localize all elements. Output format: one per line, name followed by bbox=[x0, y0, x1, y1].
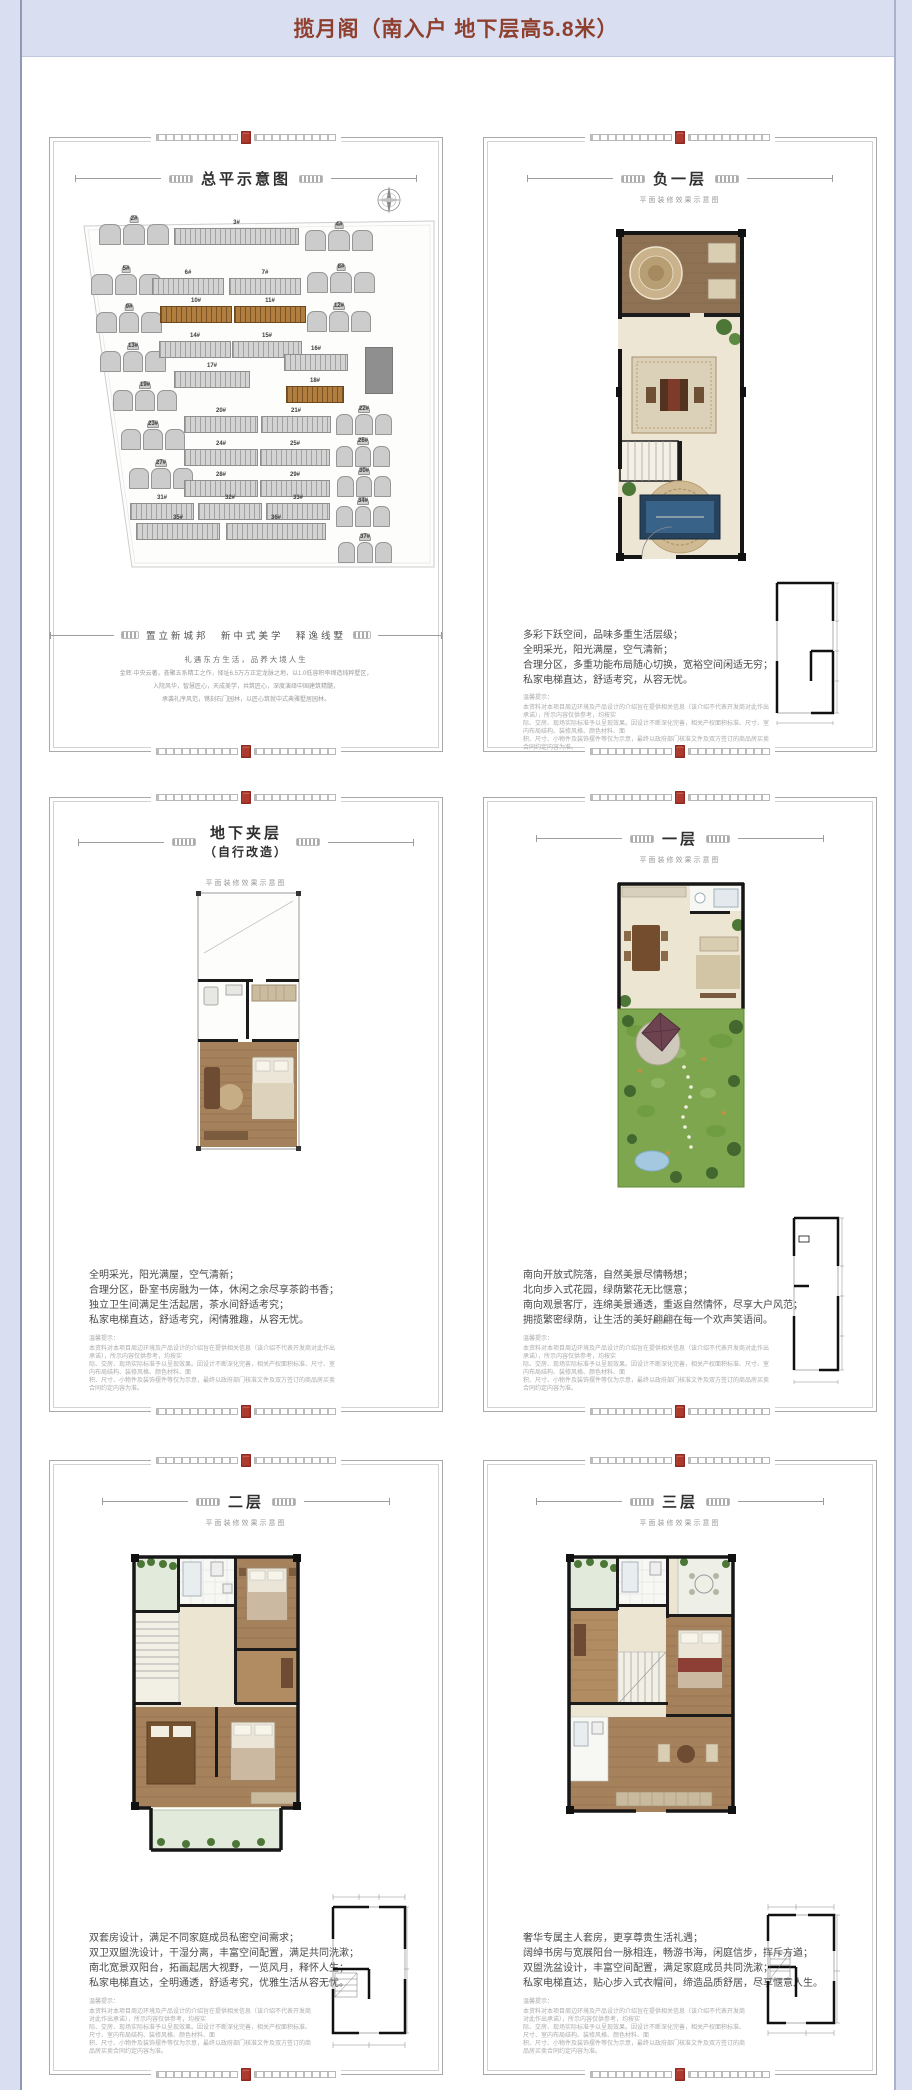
building-25#: 25# bbox=[260, 449, 330, 466]
building-label: 11# bbox=[265, 298, 275, 304]
building-label: 25# bbox=[290, 441, 300, 447]
building-label: 20# bbox=[216, 408, 226, 414]
key-plan-diagram bbox=[319, 1889, 409, 2056]
project-paragraph: 金辉·中央云著，荟聚五系精工之作，择址6.5万方正定龙脉之地，以1.0低容积率缔… bbox=[70, 668, 422, 707]
building-label: 19# bbox=[139, 381, 151, 389]
panel-ornament-top bbox=[151, 791, 341, 804]
floor-plan-basement-1 bbox=[616, 229, 746, 561]
red-seal-icon bbox=[675, 2068, 685, 2081]
building-label: 16# bbox=[311, 346, 321, 352]
building-label: 3# bbox=[233, 220, 240, 226]
disclaimer-line: 际、交房、现场实际标准予以呈现效果。因设计不断深化完善，相关产权面积标准、尺寸、… bbox=[523, 720, 773, 736]
building-37#: 37# bbox=[338, 542, 392, 563]
building-30#: 30# bbox=[337, 476, 391, 497]
building-2#: 2# bbox=[99, 224, 169, 245]
building-19#: 19# bbox=[113, 390, 177, 411]
red-seal-icon bbox=[241, 1405, 251, 1418]
disclaimer: 温馨提示： 本资料对本项目周边环境及产品设计的介绍旨在提供相关信息（该介绍不代表… bbox=[523, 1335, 773, 1393]
building-label: 24# bbox=[216, 441, 226, 447]
panel-ornament-top bbox=[585, 1454, 775, 1467]
building-label: 35# bbox=[173, 515, 183, 521]
building-label: 2# bbox=[130, 215, 139, 223]
disclaimer-line: 际、交房、现场实际标准予以呈现效果。因设计不断深化完善，相关产权面积标准、尺寸、… bbox=[523, 1361, 773, 1377]
red-seal-icon bbox=[675, 131, 685, 144]
notice-label: 温馨提示： bbox=[523, 1335, 773, 1343]
building-label: 12# bbox=[333, 302, 345, 310]
notice-label: 温馨提示： bbox=[523, 694, 773, 702]
disclaimer-line: 本资料对本项目周边环境及产品设计的介绍旨在提供相关信息（该介绍不代表开发商对此作… bbox=[89, 1345, 339, 1361]
panel-title-row: 一层 bbox=[484, 828, 876, 849]
disclaimer-line: 际、交房、现场实际标准予以呈现效果。因设计不断深化完善，相关产权面积标准、尺寸、… bbox=[89, 2024, 313, 2040]
red-seal-icon bbox=[675, 1405, 685, 1418]
red-seal-icon bbox=[241, 2068, 251, 2081]
key-plan-diagram bbox=[789, 1216, 846, 1391]
panel-subtitle: 平面装修效果示意图 bbox=[50, 878, 442, 888]
building-label: 33# bbox=[293, 495, 303, 501]
disclaimer-line: 本资料对本项目周边环境及产品设计的介绍旨在提供相关信息（该介绍不代表开发商对此作… bbox=[89, 2008, 313, 2024]
building-34#: 34# bbox=[336, 506, 390, 527]
building-block bbox=[365, 347, 393, 394]
building-label: 9# bbox=[125, 303, 134, 311]
building-label: 13# bbox=[127, 342, 139, 350]
panel-ornament-bottom bbox=[151, 1405, 341, 1418]
red-seal-icon bbox=[675, 791, 685, 804]
building-label: 36# bbox=[271, 515, 281, 521]
key-plan-diagram bbox=[756, 1901, 841, 2041]
building-label: 34# bbox=[357, 497, 369, 505]
building-13#: 13# bbox=[100, 351, 166, 372]
panel-ornament-top bbox=[151, 1454, 341, 1467]
building-31#: 31# bbox=[130, 503, 194, 520]
disclaimer-line: 积、尺寸、小物件及装饰摆件等仅为示意，最终以政府部门核准文件及双方签订的商品房买… bbox=[89, 2040, 313, 2056]
panel-floor-3: 三层 平面装修效果示意图 bbox=[483, 1460, 877, 2075]
floor-plan-floor-1 bbox=[616, 881, 746, 1191]
panel-subtitle: 平面装修效果示意图 bbox=[50, 1518, 442, 1528]
building-label: 21# bbox=[291, 408, 301, 414]
disclaimer-line: 本资料对本项目周边环境及产品设计的介绍旨在提供相关信息（该介绍不代表开发商对此作… bbox=[523, 704, 773, 720]
building-5#: 5# bbox=[91, 274, 161, 295]
panel-title: 负一层 bbox=[653, 168, 707, 189]
red-seal-icon bbox=[241, 791, 251, 804]
notice-label: 温馨提示： bbox=[523, 1998, 747, 2006]
site-plan: 2#3#4#5#6#7#8#9#10#11#12#13#14#15#16#17#… bbox=[74, 216, 440, 579]
panel-ornament-top bbox=[585, 131, 775, 144]
building-label: 5# bbox=[122, 265, 131, 273]
building-32#: 32# bbox=[198, 503, 262, 520]
panel-basement-1: 负一层 平面装修效果示意图 bbox=[483, 137, 877, 752]
building-label: 37# bbox=[359, 533, 371, 541]
building-16#: 16# bbox=[284, 354, 348, 371]
building-35#: 35# bbox=[136, 523, 220, 540]
panel-title-row: 地下夹层 （自行改造） bbox=[50, 824, 442, 860]
floor-description: 全明采光，阳光满屋，空气清新； 合理分区，卧室书房融为一体，休闲之余尽享茶韵书香… bbox=[89, 1268, 416, 1328]
red-seal-icon bbox=[241, 1454, 251, 1467]
notice-label: 温馨提示： bbox=[89, 1998, 313, 2006]
left-margin-strip bbox=[0, 0, 22, 2090]
building-label: 18# bbox=[310, 378, 320, 384]
disclaimer-line: 际、交房、现场实际标准予以呈现效果。因设计不断深化完善，相关产权面积标准、尺寸、… bbox=[523, 2024, 747, 2040]
disclaimer: 温馨提示： 本资料对本项目周边环境及产品设计的介绍旨在提供相关信息（该介绍不代表… bbox=[89, 1335, 339, 1393]
building-label: 23# bbox=[147, 420, 159, 428]
disclaimer-line: 积、尺寸、小物件及装饰摆件等仅为示意，最终以政府部门核准文件及双方签订的商品房买… bbox=[523, 2040, 747, 2056]
panel-title: 总平示意图 bbox=[201, 168, 291, 189]
building-label: 14# bbox=[190, 333, 200, 339]
building-12#: 12# bbox=[307, 311, 371, 332]
paragraph-line: 入院风华，智慧匠心，天成美学，共筑匠心，深度演绎中国建筑精髓， bbox=[70, 681, 422, 694]
building-label: 30# bbox=[358, 467, 370, 475]
building-26#: 26# bbox=[336, 446, 390, 467]
building-23#: 23# bbox=[121, 429, 185, 450]
building-label: 29# bbox=[290, 472, 300, 478]
building-label: 7# bbox=[262, 270, 269, 276]
panel-mezzanine: 地下夹层 （自行改造） 平面装修效果示意图 bbox=[49, 797, 443, 1412]
disclaimer-line: 积、尺寸、小物件及装饰摆件等仅为示意，最终以政府部门核准文件及双方签订的商品房买… bbox=[89, 1377, 339, 1393]
panel-title-row: 二层 bbox=[50, 1491, 442, 1512]
building-20#: 20# bbox=[184, 416, 258, 433]
disclaimer-line: 本资料对本项目周边环境及产品设计的介绍旨在提供相关信息（该介绍不代表开发商对此作… bbox=[523, 2008, 747, 2024]
red-seal-icon bbox=[241, 131, 251, 144]
building-18#: 18# bbox=[286, 386, 344, 403]
building-label: 31# bbox=[157, 495, 167, 501]
floor-plan-floor-3 bbox=[566, 1554, 736, 1849]
panel-floor-2: 二层 平面装修效果示意图 bbox=[49, 1460, 443, 2075]
desc-line: 全明采光，阳光满屋，空气清新； bbox=[89, 1268, 416, 1283]
panel-subtitle: 平面装修效果示意图 bbox=[484, 1518, 876, 1528]
desc-line: 独立卫生间满足生活起居，茶水间舒适考究； bbox=[89, 1298, 416, 1313]
building-9#: 9# bbox=[96, 312, 162, 333]
panel-title: 三层 bbox=[662, 1491, 698, 1512]
building-7#: 7# bbox=[229, 278, 301, 295]
building-label: 8# bbox=[337, 263, 346, 271]
paragraph-line: 承袭礼序风范，镌刻石门园林，以匠心筑就中式典雅墅居园林。 bbox=[70, 694, 422, 707]
building-24#: 24# bbox=[184, 449, 258, 466]
panel-title-row: 负一层 bbox=[484, 168, 876, 189]
desc-line: 合理分区，卧室书房融为一体，休闲之余尽享茶韵书香； bbox=[89, 1283, 416, 1298]
project-tagline: 置立新城邦 新中式美学 释逸线墅 bbox=[146, 628, 346, 642]
key-plan-diagram bbox=[771, 581, 841, 731]
building-36#: 36# bbox=[226, 523, 326, 540]
building-28#: 28# bbox=[184, 480, 258, 497]
floor-plan-mezzanine bbox=[196, 891, 301, 1151]
panel-title: 地下夹层 bbox=[210, 824, 282, 844]
building-label: 6# bbox=[185, 270, 192, 276]
panel-ornament-bottom bbox=[585, 2068, 775, 2081]
building-22#: 22# bbox=[336, 414, 392, 435]
building-3#: 3# bbox=[174, 228, 299, 245]
panel-subtitle: 平面装修效果示意图 bbox=[484, 855, 876, 865]
compass-icon bbox=[374, 182, 404, 216]
paragraph-line: 金辉·中央云著，荟聚五系精工之作，择址6.5万方正定龙脉之地，以1.0低容积率缔… bbox=[70, 668, 422, 681]
panel-subtitle: 平面装修效果示意图 bbox=[484, 195, 876, 205]
notice-label: 温馨提示： bbox=[89, 1335, 339, 1343]
building-21#: 21# bbox=[261, 416, 331, 433]
panel-ornament-bottom bbox=[151, 2068, 341, 2081]
panel-ornament-top bbox=[151, 131, 341, 144]
building-11#: 11# bbox=[234, 306, 306, 323]
disclaimer-line: 积、尺寸、小物件及装饰摆件等仅为示意，最终以政府部门核准文件及双方签订的商品房买… bbox=[523, 1377, 773, 1393]
building-label: 15# bbox=[262, 333, 272, 339]
red-seal-icon bbox=[675, 1454, 685, 1467]
disclaimer: 温馨提示： 本资料对本项目周边环境及产品设计的介绍旨在提供相关信息（该介绍不代表… bbox=[89, 1998, 313, 2056]
building-17#: 17# bbox=[174, 371, 250, 388]
building-label: 26# bbox=[357, 437, 369, 445]
building-label: 4# bbox=[335, 221, 344, 229]
disclaimer-line: 积、尺寸、小物件及装饰摆件等仅为示意，最终以政府部门核准文件及双方签订的商品房买… bbox=[523, 736, 773, 752]
desc-line: 私家电梯直达，舒适考究，闲情雅趣，从容无忧。 bbox=[89, 1313, 416, 1328]
building-10#: 10# bbox=[160, 306, 232, 323]
page-title: 揽月阁（南入户 地下层高5.8米） bbox=[0, 13, 912, 43]
building-label: 17# bbox=[207, 363, 217, 369]
building-label: 22# bbox=[358, 405, 370, 413]
disclaimer-line: 际、交房、现场实际标准予以呈现效果。因设计不断深化完善，相关产权面积标准、尺寸、… bbox=[89, 1361, 339, 1377]
building-label: 10# bbox=[191, 298, 201, 304]
panel-ornament-top bbox=[585, 791, 775, 804]
panel-ornament-bottom bbox=[585, 1405, 775, 1418]
building-label: 32# bbox=[225, 495, 235, 501]
building-label: 28# bbox=[216, 472, 226, 478]
panel-ornament-bottom bbox=[151, 745, 341, 758]
site-plan-buildings: 2#3#4#5#6#7#8#9#10#11#12#13#14#15#16#17#… bbox=[74, 216, 440, 579]
project-slogan: 礼遇东方生活，品养大境人生 bbox=[50, 654, 442, 665]
panel-floor-1: 一层 平面装修效果示意图 bbox=[483, 797, 877, 1412]
right-margin-strip bbox=[894, 0, 912, 2090]
tagline-row: 置立新城邦 新中式美学 释逸线墅 bbox=[50, 628, 442, 642]
disclaimer: 温馨提示： 本资料对本项目周边环境及产品设计的介绍旨在提供相关信息（该介绍不代表… bbox=[523, 1998, 747, 2056]
building-4#: 4# bbox=[305, 230, 373, 251]
panel-title-row: 三层 bbox=[484, 1491, 876, 1512]
building-8#: 8# bbox=[307, 272, 375, 293]
disclaimer-line: 本资料对本项目周边环境及产品设计的介绍旨在提供相关信息（该介绍不代表开发商对此作… bbox=[523, 1345, 773, 1361]
panel-master-plan: 总平示意图 2#3#4#5#6#7#8#9#10#11#12#13#14#15#… bbox=[49, 137, 443, 752]
floor-plan-floor-2 bbox=[131, 1554, 301, 1854]
panel-title: 二层 bbox=[228, 1491, 264, 1512]
building-14#: 14# bbox=[159, 341, 231, 358]
panel-title-note: （自行改造） bbox=[204, 844, 288, 860]
panel-title: 一层 bbox=[662, 828, 698, 849]
building-6#: 6# bbox=[152, 278, 224, 295]
red-seal-icon bbox=[241, 745, 251, 758]
building-label: 27# bbox=[155, 459, 167, 467]
disclaimer: 温馨提示： 本资料对本项目周边环境及产品设计的介绍旨在提供相关信息（该介绍不代表… bbox=[523, 694, 773, 752]
